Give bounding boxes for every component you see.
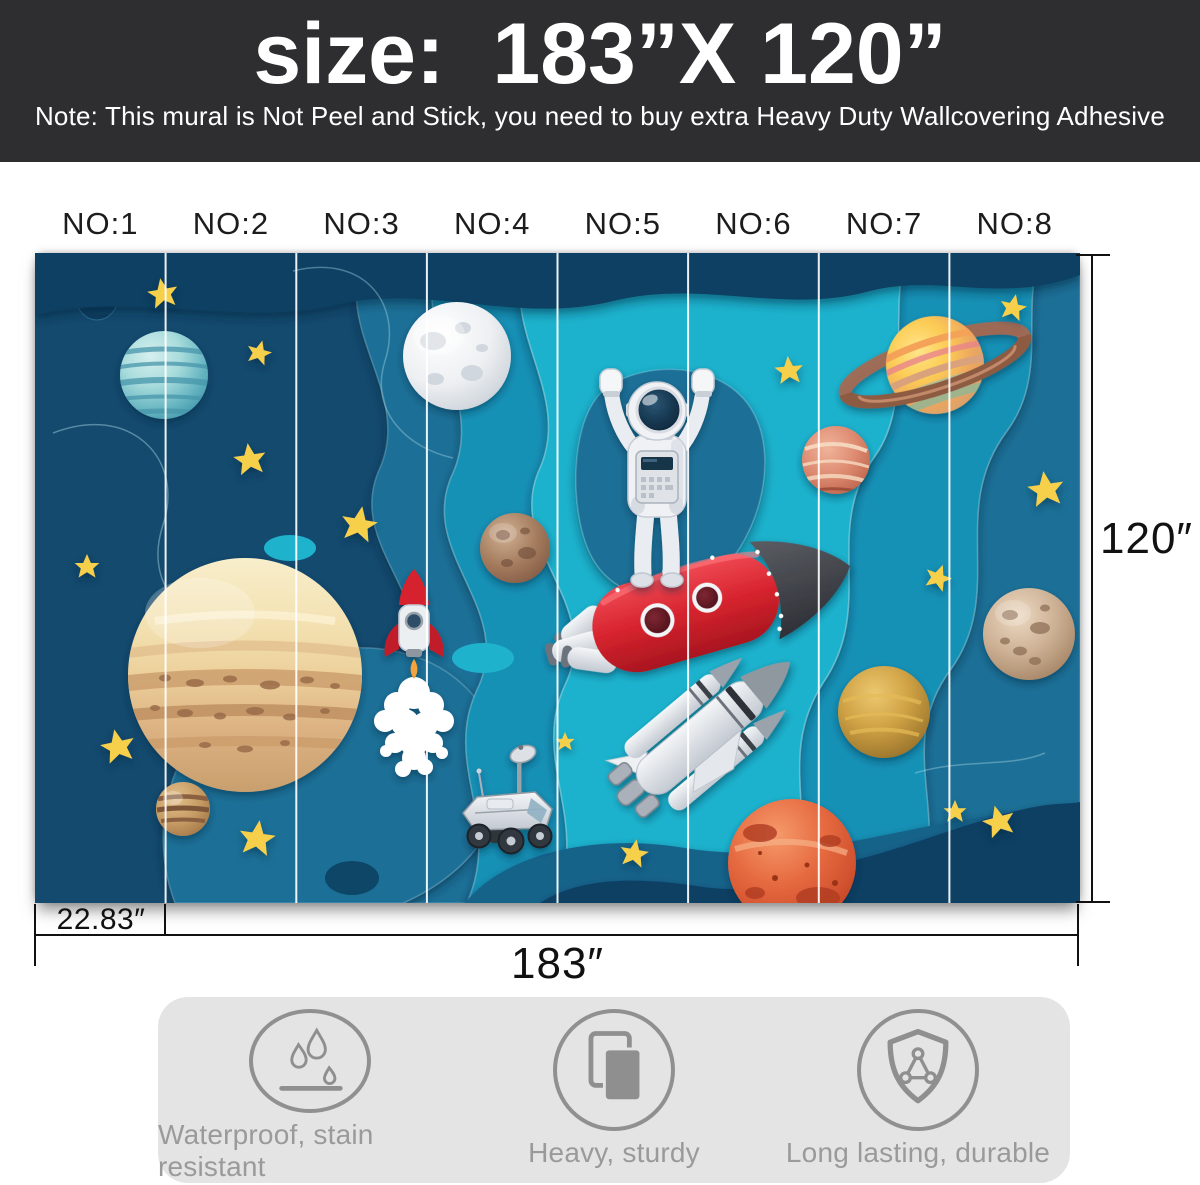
feature-durable: Long lasting, durable	[766, 997, 1070, 1183]
feature-label: Waterproof, stain resistant	[158, 1119, 462, 1183]
header-banner: size: 183”X 120” Note: This mural is Not…	[0, 0, 1200, 162]
panel-label-8: NO:8	[949, 206, 1080, 248]
feature-strip: Waterproof, stain resistant Heavy, sturd…	[158, 997, 1070, 1183]
panel-label-row: NO:1 NO:2 NO:3 NO:4 NO:5 NO:6 NO:7 NO:8	[35, 206, 1080, 248]
small-banded-planet	[156, 782, 210, 836]
adhesive-note: Note: This mural is Not Peel and Stick, …	[35, 102, 1165, 131]
height-dim-label: 120″	[1100, 514, 1193, 564]
panel-label-6: NO:6	[688, 206, 819, 248]
height-dim-tick-top	[1076, 254, 1110, 256]
feature-waterproof: Waterproof, stain resistant	[158, 997, 462, 1183]
space-scene	[35, 253, 1080, 903]
panel-dim-tick	[164, 904, 166, 935]
height-dim-tick-bottom	[1076, 901, 1110, 903]
water-drops-icon	[262, 1013, 358, 1109]
panel-label-2: NO:2	[166, 206, 297, 248]
panel-label-7: NO:7	[819, 206, 950, 248]
feature-heavy: Heavy, sturdy	[462, 997, 766, 1183]
panel-label-1: NO:1	[35, 206, 166, 248]
feature-circle	[857, 1009, 979, 1131]
feature-circle	[249, 1009, 371, 1113]
gold-planet	[838, 666, 930, 758]
panel-label-5: NO:5	[558, 206, 689, 248]
panel-label-4: NO:4	[427, 206, 558, 248]
cratered-brown-planet	[480, 513, 550, 583]
feature-label: Heavy, sturdy	[528, 1137, 700, 1169]
teal-striped-planet	[120, 331, 208, 419]
moon	[403, 302, 511, 410]
red-marbled-planet	[802, 426, 870, 494]
tan-cratered-planet	[983, 588, 1075, 680]
width-dim-line	[35, 934, 1079, 936]
size-title: size: 183”X 120”	[253, 6, 946, 102]
panel-label-3: NO:3	[296, 206, 427, 248]
height-dim-line	[1091, 255, 1093, 903]
total-width-label: 183″	[35, 939, 1080, 989]
mural-preview-image	[35, 253, 1080, 903]
feature-label: Long lasting, durable	[786, 1137, 1050, 1169]
shield-icon	[870, 1022, 966, 1118]
feature-circle	[553, 1009, 675, 1131]
stacked-panels-icon	[566, 1022, 662, 1118]
product-infographic: size: 183”X 120” Note: This mural is Not…	[0, 0, 1200, 1185]
jupiter-planet	[128, 558, 362, 792]
panel-width-label: 22.83″	[40, 903, 162, 937]
